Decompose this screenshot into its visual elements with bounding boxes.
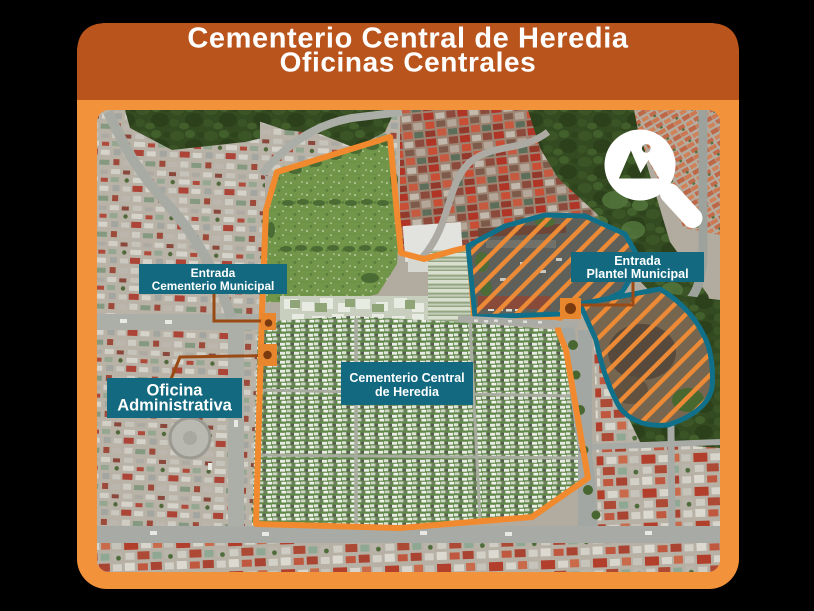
- svg-text:Cementerio Municipal: Cementerio Municipal: [152, 279, 275, 293]
- svg-text:Entrada: Entrada: [191, 266, 236, 280]
- svg-text:Cementerio Central: Cementerio Central: [349, 371, 464, 385]
- svg-text:Entrada: Entrada: [614, 254, 662, 268]
- svg-text:Administrativa: Administrativa: [117, 397, 232, 415]
- svg-text:Plantel Municipal: Plantel Municipal: [586, 267, 688, 281]
- svg-text:de Heredia: de Heredia: [375, 385, 440, 399]
- svg-text:Oficinas Centrales: Oficinas Centrales: [280, 47, 537, 78]
